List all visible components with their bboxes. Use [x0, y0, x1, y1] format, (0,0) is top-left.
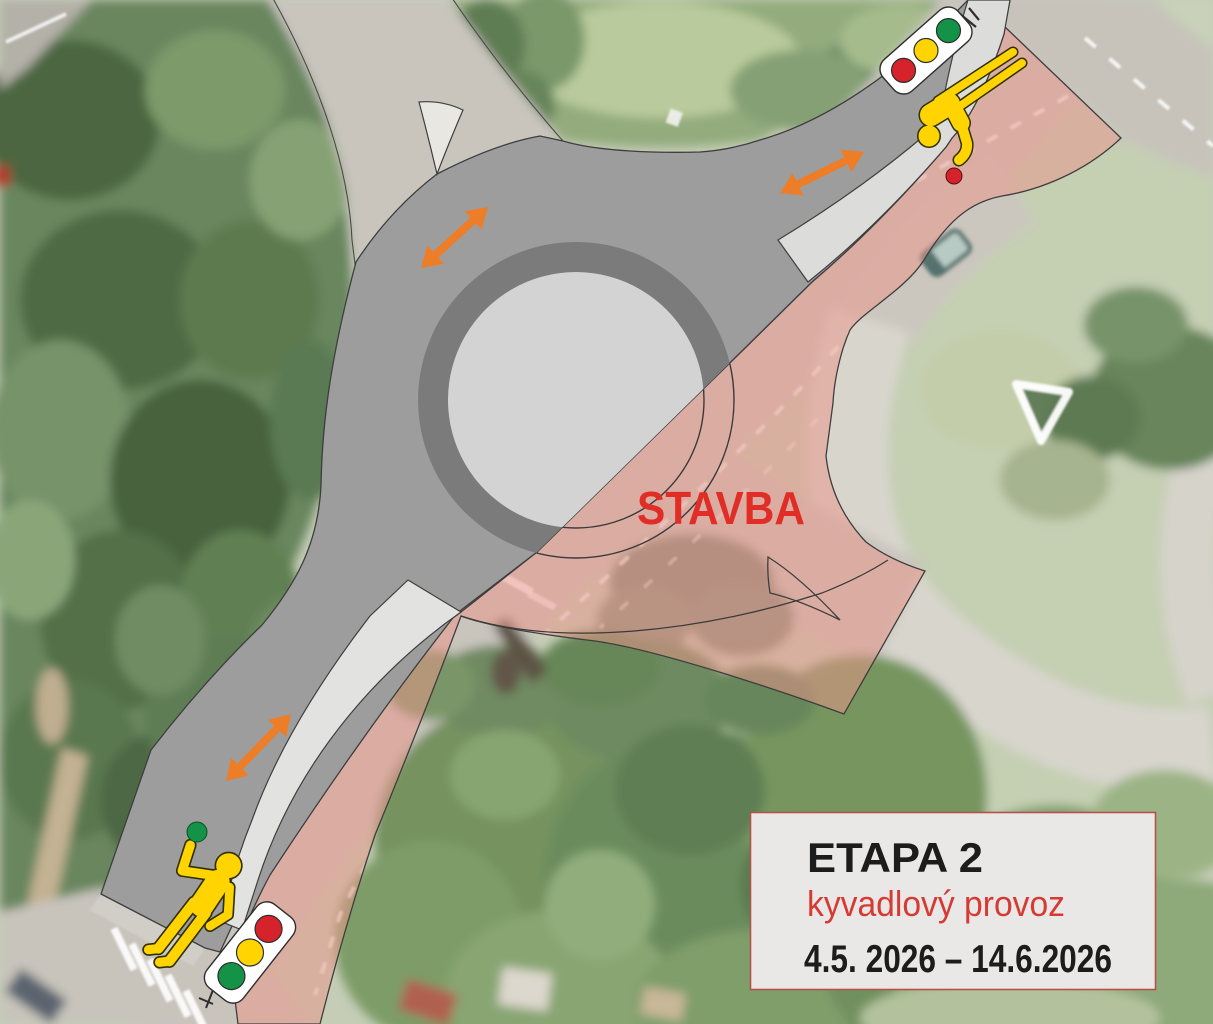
svg-text:STAVBA: STAVBA: [637, 482, 805, 534]
svg-text:kyvadlový provoz: kyvadlový provoz: [807, 883, 1065, 924]
svg-text:4.5. 2026 – 14.6.2026: 4.5. 2026 – 14.6.2026: [804, 938, 1112, 981]
svg-text:ETAPA 2: ETAPA 2: [807, 834, 983, 881]
